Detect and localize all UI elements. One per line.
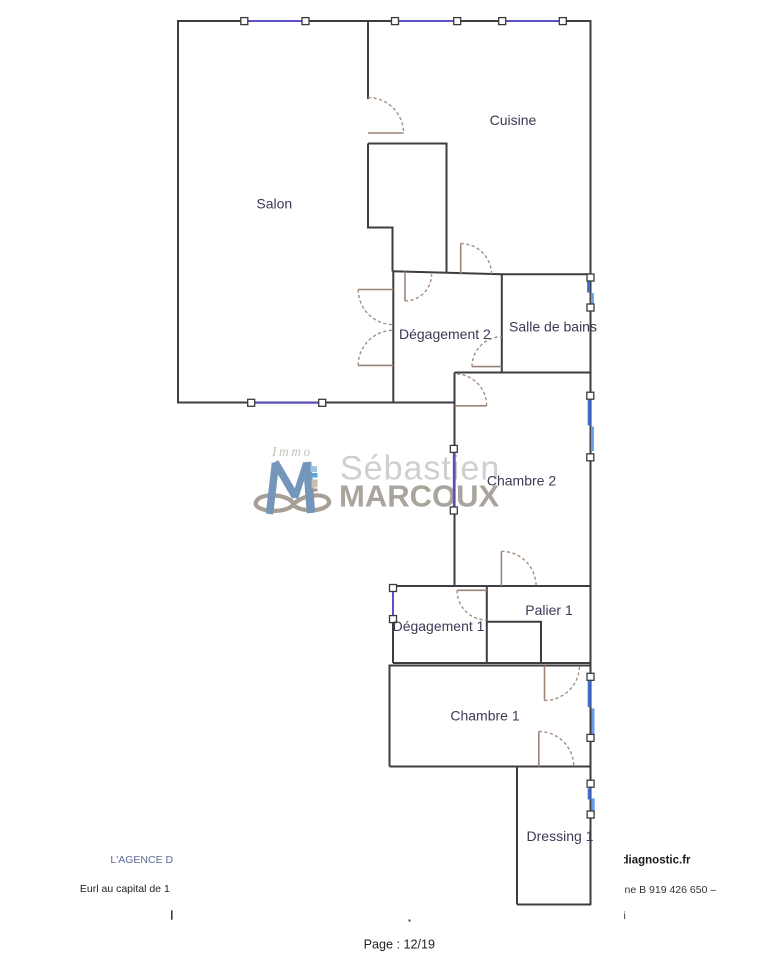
svg-text:diagnostic.fr: diagnostic.fr: [622, 855, 692, 867]
svg-text:Immo: Immo: [271, 444, 313, 459]
svg-text:MARCOUX: MARCOUX: [339, 479, 499, 514]
svg-text:Salle de bains: Salle de bains: [509, 319, 597, 335]
svg-text:Chambre 2: Chambre 2: [487, 472, 556, 488]
svg-text:ne B 919 426 650 –: ne B 919 426 650 –: [625, 884, 717, 896]
svg-text:Salon: Salon: [256, 196, 292, 212]
svg-text:Page : 12/19: Page : 12/19: [364, 938, 435, 952]
svg-text:Dégagement 2: Dégagement 2: [399, 326, 491, 342]
svg-text:Chambre 1: Chambre 1: [450, 708, 519, 724]
svg-text:i: i: [624, 910, 626, 922]
svg-text:Palier 1: Palier 1: [525, 602, 573, 618]
svg-text:Dressing 1: Dressing 1: [527, 828, 594, 844]
svg-text:Dégagement 1: Dégagement 1: [393, 618, 485, 634]
svg-text:L'AGENCE D: L'AGENCE D: [110, 854, 173, 866]
svg-text:Eurl au capital de 1: Eurl au capital de 1: [80, 883, 170, 895]
svg-text:Cuisine: Cuisine: [490, 112, 537, 128]
